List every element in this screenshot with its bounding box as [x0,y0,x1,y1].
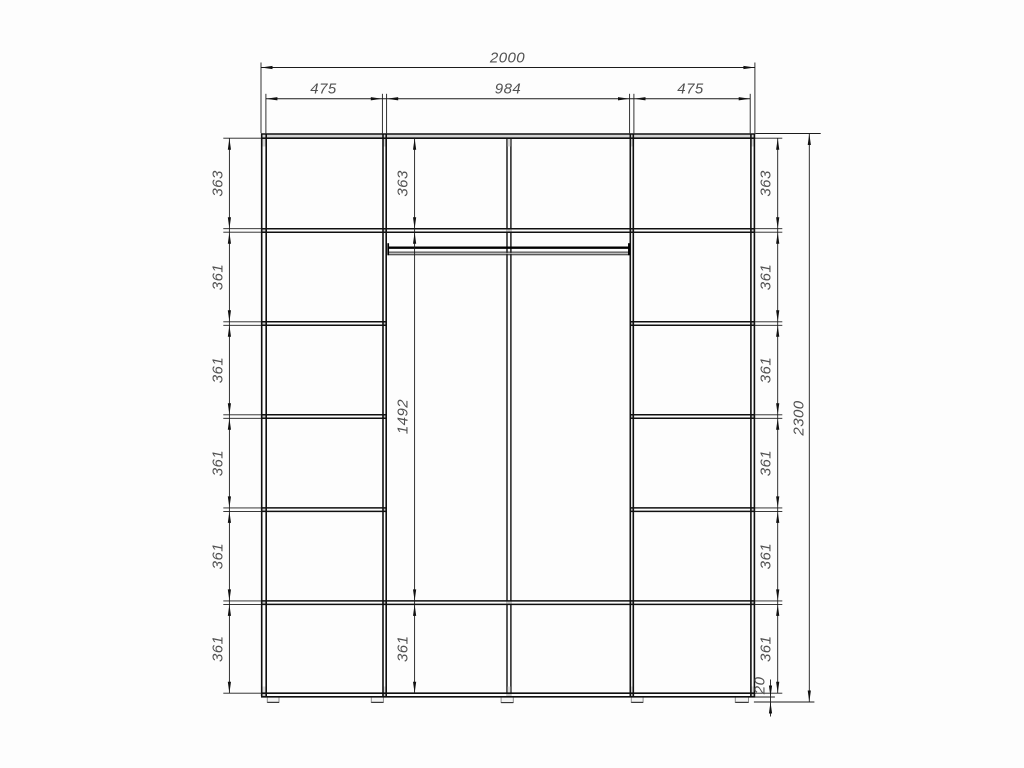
svg-text:361: 361 [758,543,775,569]
svg-text:20: 20 [752,676,769,695]
svg-text:363: 363 [758,170,775,197]
svg-text:361: 361 [395,636,412,662]
svg-text:475: 475 [677,81,704,98]
svg-text:361: 361 [210,357,227,383]
svg-text:361: 361 [210,450,227,476]
svg-text:361: 361 [210,543,227,569]
svg-text:2000: 2000 [489,50,525,67]
svg-text:361: 361 [758,357,775,383]
svg-text:361: 361 [758,450,775,476]
svg-text:361: 361 [210,264,227,290]
svg-text:361: 361 [758,264,775,290]
svg-text:1492: 1492 [395,399,412,434]
svg-text:363: 363 [395,170,412,197]
svg-text:361: 361 [210,636,227,662]
svg-text:361: 361 [758,636,775,662]
svg-text:2300: 2300 [791,400,808,436]
svg-text:475: 475 [310,81,337,98]
svg-text:363: 363 [210,170,227,197]
svg-text:984: 984 [495,81,521,98]
